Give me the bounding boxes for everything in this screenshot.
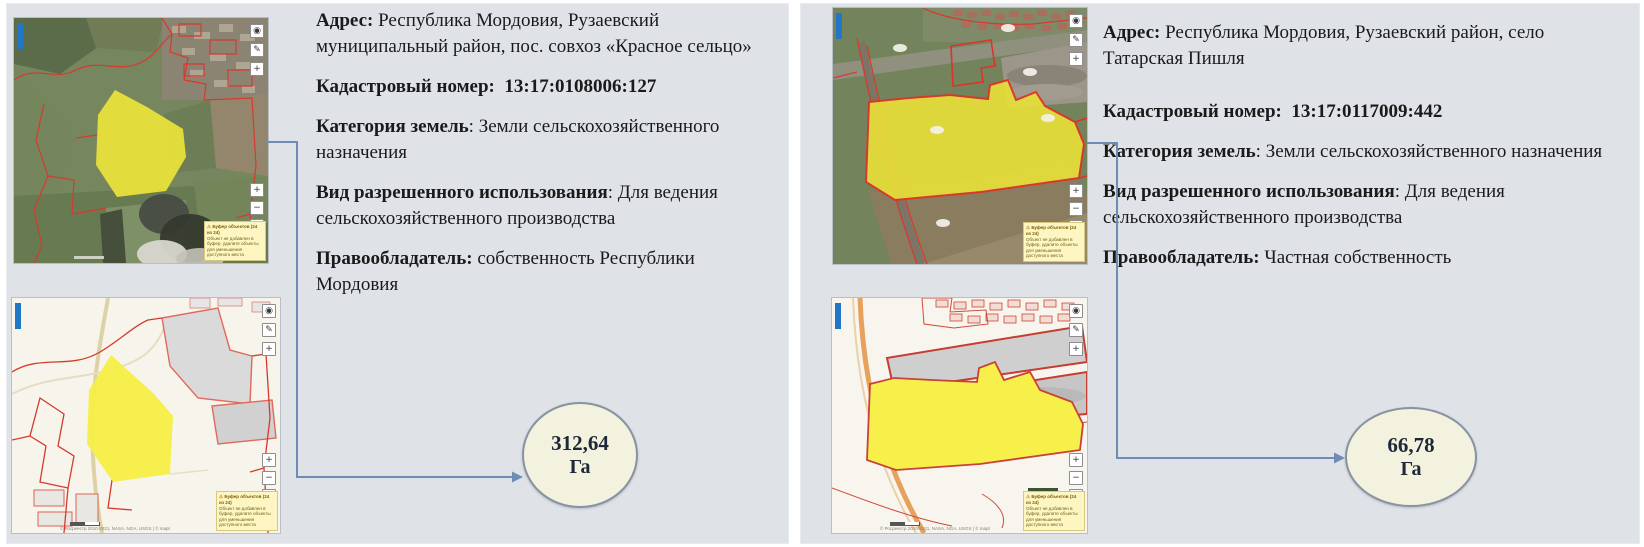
zoom-in-button[interactable]: + [1069, 453, 1083, 467]
map-buffer-tooltip: ⚠ Буфер объектов (24 из 24) Объект не до… [204, 221, 266, 261]
field-land-category: Категория земель: Земли сельскохозяйстве… [1103, 139, 1625, 165]
zoom-out-button[interactable]: − [262, 471, 276, 485]
zoom-in-button[interactable]: + [1069, 184, 1083, 198]
field-cadastral-number: Кадастровый номер: 13:17:0117009:442 [1103, 99, 1625, 125]
locate-button[interactable]: + [1069, 52, 1083, 66]
zoom-out-button[interactable]: − [1069, 471, 1083, 485]
zoom-in-button[interactable]: + [250, 183, 264, 197]
warning-icon: ⚠ [219, 494, 223, 499]
area-value: 312,64 [551, 431, 609, 455]
field-land-category: Категория земель: Земли сельскохозяйстве… [316, 114, 774, 166]
layers-button[interactable]: ◉ [250, 24, 264, 38]
area-badge: 66,78 Га [1345, 407, 1477, 507]
zoom-in-button[interactable]: + [262, 453, 276, 467]
map-buffer-tooltip: ⚠ Буфер объектов (24 из 24) Объект не до… [216, 491, 278, 531]
area-unit: Га [1401, 458, 1422, 481]
zoom-out-button[interactable]: − [250, 201, 264, 215]
map-sidebar-handle [17, 23, 23, 49]
locate-button[interactable]: + [262, 342, 276, 356]
satellite-map-1: ◉ ✎ + + − − ⚠ Буфер объектов (24 из 24) … [14, 18, 268, 263]
map-sidebar-handle [835, 303, 841, 329]
map-attribution: © Росреестр 2010-2021, NASA, NGA, USGS |… [880, 526, 990, 531]
field-rights-holder: Правообладатель: Частная собственность [1103, 245, 1625, 271]
scheme-map-2: ◉ ✎ + + − − © Росреестр 2010-2021, NASA,… [832, 298, 1087, 533]
map-toolbar: ◉ ✎ + [1069, 304, 1083, 356]
area-unit: Га [570, 456, 591, 479]
satellite-map-2: ◉ ✎ + + − − ⚠ Буфер объектов (24 из 24) … [833, 8, 1087, 264]
area-badge: 312,64 Га [522, 402, 638, 508]
draw-button[interactable]: ✎ [1069, 323, 1083, 337]
warning-icon: ⚠ [1026, 494, 1030, 499]
draw-button[interactable]: ✎ [1069, 33, 1083, 47]
map-toolbar: ◉ ✎ + [250, 24, 264, 76]
map-sidebar-handle [15, 303, 21, 329]
map-toolbar: ◉ ✎ + [262, 304, 276, 356]
draw-button[interactable]: ✎ [250, 43, 264, 57]
map-buffer-tooltip: ⚠ Буфер объектов (24 из 24) Объект не до… [1023, 222, 1085, 262]
field-permitted-use: Вид разрешенного использования: Для веде… [316, 180, 774, 232]
warning-icon: ⚠ [207, 224, 211, 229]
draw-button[interactable]: ✎ [262, 323, 276, 337]
page: ◉ ✎ + + − − ⚠ Буфер объектов (24 из 24) … [0, 0, 1644, 547]
layers-button[interactable]: ◉ [262, 304, 276, 318]
zoom-out-button[interactable]: − [1069, 202, 1083, 216]
field-rights-holder: Правообладатель: собственность Республик… [316, 246, 774, 298]
scheme-map-1: ◉ ✎ + + − − © Росреестр 2010-2021, NASA,… [12, 298, 280, 533]
parcel-info: Адрес: Республика Мордовия, Рузаевский р… [1103, 20, 1625, 285]
map-attribution: © Росреестр 2010-2021, NASA, NGA, USGS |… [60, 526, 170, 531]
field-address: Адрес: Республика Мордовия, Рузаевский р… [1103, 20, 1625, 72]
layers-button[interactable]: ◉ [1069, 14, 1083, 28]
area-value: 66,78 [1387, 433, 1434, 457]
parcel-panel-1: ◉ ✎ + + − − ⚠ Буфер объектов (24 из 24) … [6, 3, 789, 544]
field-permitted-use: Вид разрешенного использования: Для веде… [1103, 179, 1625, 231]
parcel-panel-2: ◉ ✎ + + − − ⚠ Буфер объектов (24 из 24) … [800, 3, 1640, 544]
locate-button[interactable]: + [250, 62, 264, 76]
map-buffer-tooltip: ⚠ Буфер объектов (24 из 24) Объект не до… [1023, 491, 1085, 531]
field-address: Адрес: Республика Мордовия, Рузаевский м… [316, 8, 774, 60]
locate-button[interactable]: + [1069, 342, 1083, 356]
map-toolbar: ◉ ✎ + [1069, 14, 1083, 66]
parcel-info: Адрес: Республика Мордовия, Рузаевский м… [316, 8, 774, 312]
field-cadastral-number: Кадастровый номер: 13:17:0108006:127 [316, 74, 774, 100]
layers-button[interactable]: ◉ [1069, 304, 1083, 318]
map-sidebar-handle [836, 13, 842, 39]
warning-icon: ⚠ [1026, 225, 1030, 230]
